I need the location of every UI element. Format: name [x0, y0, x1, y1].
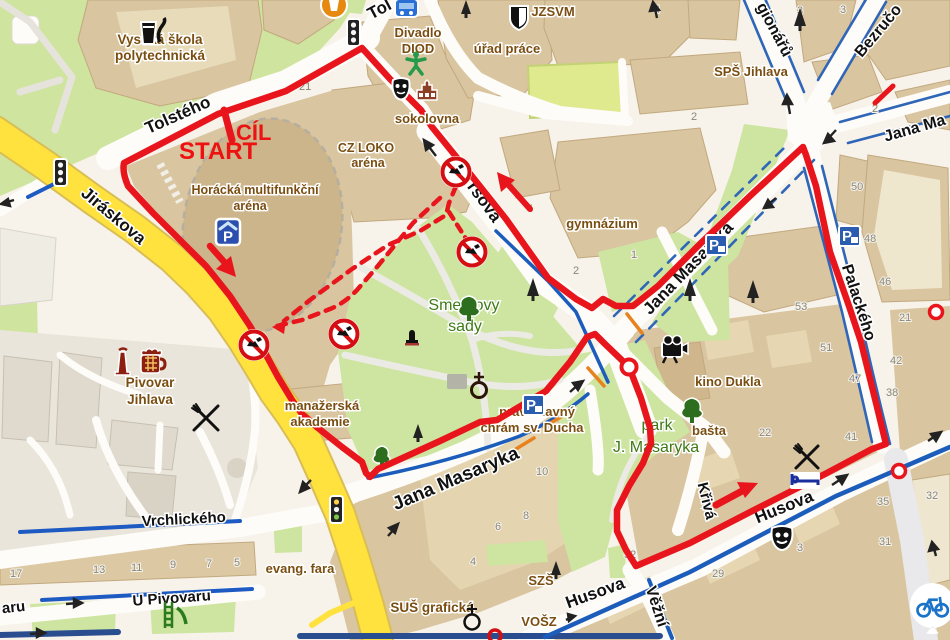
svg-text:SPŠ Jihlava: SPŠ Jihlava [714, 64, 788, 79]
svg-text:53: 53 [795, 301, 807, 313]
svg-text:START: START [179, 138, 258, 165]
svg-text:6: 6 [495, 521, 501, 533]
svg-text:aréna: aréna [351, 156, 385, 170]
svg-text:46: 46 [879, 276, 891, 288]
svg-text:48: 48 [864, 233, 876, 245]
svg-text:50: 50 [851, 181, 863, 193]
svg-text:aréna: aréna [233, 199, 267, 213]
svg-text:J. Masaryka: J. Masaryka [613, 439, 699, 456]
svg-text:51: 51 [820, 342, 832, 354]
svg-text:aru: aru [1, 598, 26, 617]
svg-text:gymnázium: gymnázium [566, 216, 638, 231]
svg-text:22: 22 [759, 427, 771, 439]
svg-text:10: 10 [536, 466, 548, 478]
svg-text:P: P [842, 228, 852, 245]
svg-text:13: 13 [93, 564, 105, 576]
svg-text:9: 9 [170, 559, 176, 571]
svg-text:Jihlava: Jihlava [127, 392, 173, 407]
svg-text:JZSVM: JZSVM [531, 4, 574, 19]
svg-text:akademie: akademie [290, 414, 349, 429]
svg-text:3: 3 [797, 542, 803, 554]
svg-text:P: P [526, 397, 536, 414]
svg-text:P: P [223, 229, 233, 246]
svg-text:SZŠ: SZŠ [528, 573, 554, 588]
svg-text:21: 21 [899, 312, 911, 324]
svg-text:32: 32 [926, 490, 938, 502]
svg-text:Horácká multifunkční: Horácká multifunkční [191, 183, 319, 197]
svg-text:31: 31 [879, 536, 891, 548]
svg-text:17: 17 [10, 568, 22, 580]
svg-text:evang. fara: evang. fara [266, 561, 335, 576]
svg-text:kino Dukla: kino Dukla [695, 374, 762, 389]
svg-text:1: 1 [631, 249, 637, 261]
svg-text:2: 2 [573, 265, 579, 277]
svg-text:11: 11 [131, 562, 142, 574]
svg-text:8: 8 [523, 510, 529, 522]
svg-text:7: 7 [206, 558, 212, 570]
svg-text:CZ LOKO: CZ LOKO [338, 141, 395, 155]
svg-text:42: 42 [890, 355, 902, 367]
svg-text:manažerská: manažerská [285, 398, 360, 413]
svg-text:bašta: bašta [692, 423, 727, 438]
svg-text:P: P [709, 237, 719, 254]
svg-text:35: 35 [877, 496, 889, 508]
svg-text:47: 47 [849, 373, 861, 385]
svg-text:sady: sady [448, 318, 482, 335]
svg-text:VOŠZ: VOŠZ [521, 614, 556, 629]
svg-text:29: 29 [712, 568, 724, 580]
svg-text:úřad práce: úřad práce [474, 41, 540, 56]
svg-text:Pivovar: Pivovar [126, 375, 176, 390]
svg-text:SUŠ grafická: SUŠ grafická [390, 600, 474, 615]
svg-text:41: 41 [845, 431, 857, 443]
svg-text:polytechnická: polytechnická [115, 48, 206, 63]
svg-text:2: 2 [691, 111, 697, 123]
svg-text:5: 5 [234, 557, 240, 569]
svg-text:4: 4 [470, 556, 476, 568]
svg-text:Divadlo: Divadlo [395, 25, 442, 40]
svg-text:38: 38 [886, 387, 898, 399]
svg-text:3: 3 [840, 4, 846, 16]
svg-text:sokolovna: sokolovna [395, 111, 460, 126]
